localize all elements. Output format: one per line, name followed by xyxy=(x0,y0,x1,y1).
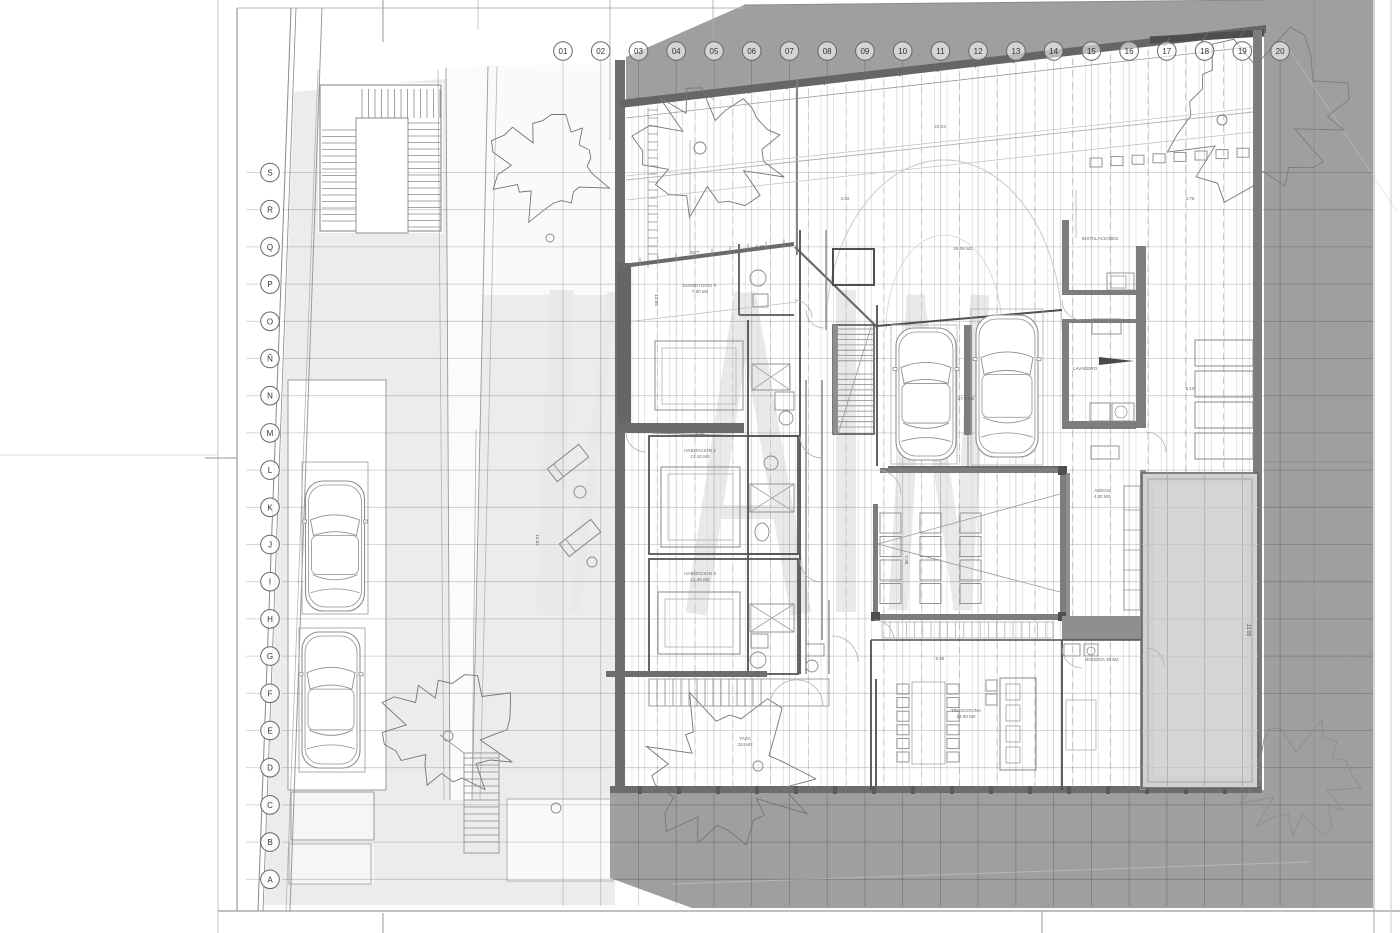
svg-text:12.06: 12.06 xyxy=(654,294,659,306)
svg-text:S: S xyxy=(267,169,272,178)
svg-text:6.10: 6.10 xyxy=(1186,386,1195,391)
svg-text:2.88: 2.88 xyxy=(904,556,909,565)
svg-text:11: 11 xyxy=(936,47,945,56)
svg-text:4.76: 4.76 xyxy=(1186,196,1195,201)
svg-text:5.85: 5.85 xyxy=(936,656,945,661)
svg-text:07: 07 xyxy=(785,47,794,56)
svg-text:O: O xyxy=(267,317,273,326)
svg-text:14: 14 xyxy=(1049,47,1058,56)
svg-text:16: 16 xyxy=(1125,47,1134,56)
svg-text:D: D xyxy=(267,764,273,773)
svg-text:27.9 M2: 27.9 M2 xyxy=(958,396,975,401)
svg-text:5.86: 5.86 xyxy=(756,244,765,249)
svg-text:06: 06 xyxy=(747,47,756,56)
svg-text:L: L xyxy=(268,466,273,475)
svg-text:M: M xyxy=(267,429,274,438)
svg-text:P: P xyxy=(267,280,272,289)
svg-text:26.06 M2: 26.06 M2 xyxy=(953,246,973,251)
svg-text:DORMITORIO P.: DORMITORIO P. xyxy=(683,283,718,288)
svg-text:19: 19 xyxy=(1238,47,1247,56)
svg-text:BODEGA 38 M2: BODEGA 38 M2 xyxy=(1085,657,1119,662)
svg-text:03: 03 xyxy=(634,47,643,56)
svg-text:15: 15 xyxy=(1087,47,1096,56)
svg-text:10: 10 xyxy=(898,47,907,56)
svg-text:324 M2: 324 M2 xyxy=(737,742,753,747)
svg-text:7.90 M2: 7.90 M2 xyxy=(692,289,709,294)
svg-text:B: B xyxy=(267,838,272,847)
svg-text:J: J xyxy=(268,541,272,550)
svg-text:K: K xyxy=(267,503,273,512)
svg-text:R: R xyxy=(267,206,273,215)
svg-text:13: 13 xyxy=(1011,47,1020,56)
svg-text:A: A xyxy=(267,875,273,884)
svg-text:G: G xyxy=(267,652,273,661)
svg-text:23.04: 23.04 xyxy=(934,124,946,129)
svg-text:12.40 M2: 12.40 M2 xyxy=(690,577,710,582)
svg-text:Ñ: Ñ xyxy=(267,355,273,364)
svg-text:09: 09 xyxy=(860,47,869,56)
svg-text:24.80 M2: 24.80 M2 xyxy=(956,714,976,719)
svg-text:I: I xyxy=(269,578,271,587)
svg-text:18: 18 xyxy=(1200,47,1209,56)
svg-text:3.62: 3.62 xyxy=(841,196,850,201)
svg-text:02: 02 xyxy=(596,47,605,56)
svg-text:13.52: 13.52 xyxy=(535,534,540,546)
svg-text:3.25: 3.25 xyxy=(696,432,705,437)
svg-text:N: N xyxy=(267,392,273,401)
svg-text:04: 04 xyxy=(672,47,681,56)
svg-text:Q: Q xyxy=(267,243,273,252)
svg-text:4.30 M2: 4.30 M2 xyxy=(1094,494,1111,499)
svg-text:12: 12 xyxy=(974,47,983,56)
svg-text:01: 01 xyxy=(559,47,568,56)
svg-text:TAZA: TAZA xyxy=(739,736,751,741)
svg-text:17: 17 xyxy=(1162,47,1171,56)
svg-text:5.77: 5.77 xyxy=(691,250,700,255)
svg-text:TRASCOCINA: TRASCOCINA xyxy=(951,708,982,713)
svg-text:ASEOS: ASEOS xyxy=(1094,488,1110,493)
svg-text:H: H xyxy=(267,615,273,624)
svg-text:13.05: 13.05 xyxy=(1245,624,1251,637)
svg-text:LAVADERO: LAVADERO xyxy=(1073,366,1098,371)
svg-text:20: 20 xyxy=(1276,47,1285,56)
svg-text:INSTALACIONES: INSTALACIONES xyxy=(1082,236,1118,241)
svg-text:HABITACION 3: HABITACION 3 xyxy=(684,571,716,576)
svg-text:13.10 M2: 13.10 M2 xyxy=(690,454,710,459)
svg-text:C: C xyxy=(267,801,273,810)
svg-text:F: F xyxy=(268,689,273,698)
svg-text:HABITACION 2: HABITACION 2 xyxy=(684,448,716,453)
svg-text:05: 05 xyxy=(710,47,719,56)
svg-text:E: E xyxy=(267,727,272,736)
svg-text:08: 08 xyxy=(823,47,832,56)
